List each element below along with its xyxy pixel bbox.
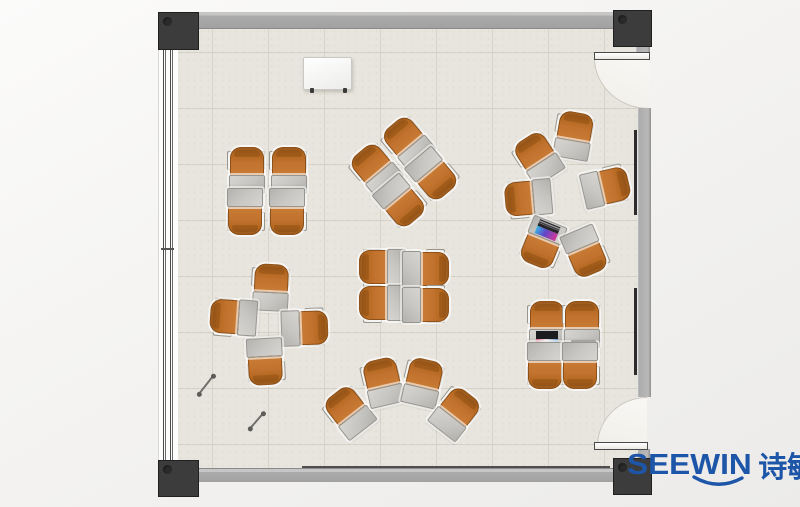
chair-desk-unit [228,189,264,235]
desk-top [562,342,598,361]
chair-backrest [534,304,560,311]
column-post-bottom-left [158,460,199,497]
chair-backrest [563,113,590,124]
chair-desk-unit [281,308,328,346]
chair-desk-unit [504,179,553,219]
chair-backrest [274,225,300,232]
chair-seat [565,301,599,331]
logo-chinese-text: 诗敏 [758,450,800,484]
chair-seat [419,252,449,286]
chair-desk-unit [247,338,285,386]
chair-seat [419,288,449,322]
chair-backrest [569,304,595,311]
chair-backrest [276,150,302,157]
caster-wheel-icon [310,88,314,93]
chair-desk-unit [563,343,599,389]
caster-wheel-icon [343,88,347,93]
mobile-whiteboard [303,57,352,90]
window-mullion-joint [161,248,174,250]
chair-seat [530,301,564,331]
desk-top [269,188,305,207]
chair-backrest [567,379,593,386]
chair-backrest [362,254,369,280]
chair-desk-unit [403,250,449,286]
desk-top [402,251,421,287]
chair-seat [230,147,264,177]
seewin-logo: SEEWIN 诗敏 [627,450,800,484]
floor-plan-render: SEEWIN 诗敏 [0,0,800,507]
desk-top [402,287,421,323]
wall-top [196,12,614,29]
chair-desk-unit [270,147,306,193]
desk-top [531,178,553,216]
chair-seat [359,286,389,320]
desk-top [237,299,258,336]
chair-desk-unit [209,298,257,337]
chair-seat [270,205,304,235]
window-wall-left [158,45,178,463]
desk-top [246,337,283,358]
chair-desk-unit [528,343,564,389]
chair-desk-unit [403,286,449,322]
chair-desk-unit [563,301,599,347]
column-post-top-right [613,10,652,47]
chair-backrest [507,186,516,213]
logo-swoosh-icon [691,475,745,490]
chair-backrest [232,225,258,232]
desk-top [527,342,563,361]
chair-backrest [234,150,260,157]
laptop-screen [536,331,558,339]
chair-backrest [439,256,446,282]
chair-desk-unit [359,250,405,286]
chair-desk-unit [528,301,564,347]
chair-seat [563,359,597,389]
wall-bottom [196,468,614,482]
chair-desk-unit [228,147,264,193]
door-leaf-top [594,52,650,60]
chair-backrest [318,314,326,340]
desk-top [227,188,263,207]
chair-desk-unit [359,286,405,322]
chair-seat [248,354,284,386]
chair-seat [254,263,290,295]
chair-backrest [439,292,446,318]
chair-backrest [259,266,285,274]
chair-seat [528,359,562,389]
chair-backrest [212,303,221,329]
chair-backrest [616,170,629,197]
chair-backrest [253,374,279,382]
desk-top [280,310,300,347]
chair-desk-unit [551,109,594,161]
chair-backrest [532,379,558,386]
chair-desk-unit [270,189,306,235]
chair-backrest [362,290,369,316]
chair-seat [359,250,389,284]
chair-seat [272,147,306,177]
wall-right [637,108,651,397]
chair-backrest [413,360,440,373]
chair-seat [228,205,262,235]
chair-backrest [366,359,393,372]
chair-seat [297,310,328,345]
column-post-top-left [158,12,199,50]
